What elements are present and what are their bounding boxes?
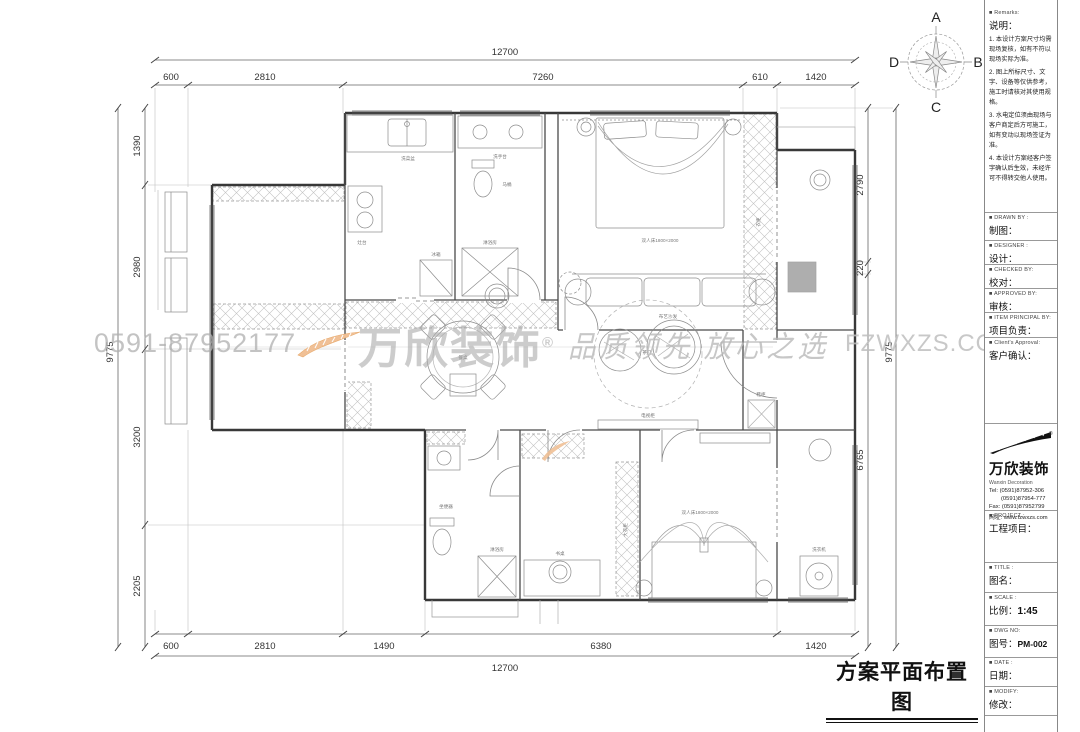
label-toilet2: 坐便器 bbox=[439, 503, 453, 510]
modify-cn: 修改： bbox=[989, 697, 1054, 711]
dim-top-1: 2810 bbox=[254, 72, 275, 83]
section-checked-by: ■ CHECKED BY: 校对： bbox=[985, 264, 1057, 289]
drawing-title-text: 方案平面布置图 bbox=[826, 656, 978, 720]
scale-label: 比例： bbox=[989, 606, 1018, 617]
company-name-en: Wanxin Decoration bbox=[989, 480, 1054, 486]
dim-top-0: 600 bbox=[163, 72, 179, 83]
logo-reg-mark: ® bbox=[1049, 430, 1053, 437]
item-principal-cn: 项目负责： bbox=[989, 323, 1054, 337]
section-modify: ■ MODIFY: 修改： bbox=[985, 686, 1057, 716]
project-cn: 工程项目： bbox=[989, 521, 1054, 535]
wardrobe-hatches bbox=[213, 114, 776, 596]
dim-left-overall: 9775 bbox=[105, 341, 116, 362]
designer-cn: 设计： bbox=[989, 251, 1054, 265]
company-tel2: (0591)87954-777 bbox=[989, 496, 1054, 502]
company-name: 万欣装饰 bbox=[989, 458, 1054, 479]
compass-north: A bbox=[931, 9, 941, 25]
sliding-doors bbox=[345, 190, 777, 540]
section-date: ■ DATE : 日期： bbox=[985, 657, 1057, 682]
section-client-approval: ■ Client's Approval: 客户确认： bbox=[985, 337, 1057, 362]
scale-cn: 比例：1:45 bbox=[989, 603, 1054, 617]
label-shower2: 淋浴房 bbox=[490, 546, 504, 553]
wall-openings bbox=[341, 188, 780, 542]
dim-left-3: 2205 bbox=[132, 575, 143, 596]
dwg-no-value: PM-002 bbox=[1018, 639, 1048, 649]
label-sofa: 布艺沙发 bbox=[659, 313, 678, 320]
checked-by-cn: 校对： bbox=[989, 275, 1054, 289]
label-bed1: 双人床1800×2000 bbox=[682, 509, 719, 516]
section-drawn-by: ■ DRAWN BY : 制图： bbox=[985, 212, 1057, 237]
label-basin1: 洗手台 bbox=[493, 153, 507, 160]
dim-left-0: 1390 bbox=[132, 135, 143, 156]
client-approval-en: ■ Client's Approval: bbox=[989, 340, 1054, 346]
compass-star bbox=[910, 36, 962, 88]
label-fridge: 冰箱 bbox=[431, 251, 441, 258]
note-2: 2. 图上所标尺寸、文字、设备等仅供参考，施工时请核对其使用规格。 bbox=[989, 68, 1054, 109]
remarks-notes: 1. 本设计方案尺寸均需现场复核，如有不符以现场实际为准。 2. 图上所标尺寸、… bbox=[989, 35, 1054, 184]
dwg-no-label: 图号： bbox=[989, 639, 1018, 650]
label-wardrobe1: 大衣柜 bbox=[622, 523, 629, 537]
dim-bot-4: 1420 bbox=[805, 641, 826, 652]
modify-en: ■ MODIFY: bbox=[989, 689, 1054, 695]
label-desk: 书桌 bbox=[555, 550, 565, 557]
dim-bot-3: 6380 bbox=[590, 641, 611, 652]
note-4: 4. 本设计方案经客户签字确认后生效，未经许可不得转交他人使用。 bbox=[989, 154, 1054, 185]
dim-top-2: 7260 bbox=[532, 72, 553, 83]
section-item-principal: ■ ITEM PRINCIPAL BY: 项目负责： bbox=[985, 312, 1057, 337]
dim-bot-0: 600 bbox=[163, 641, 179, 652]
drawn-by-en: ■ DRAWN BY : bbox=[989, 215, 1054, 221]
label-toilet1: 马桶 bbox=[502, 181, 512, 188]
section-designer: ■ DESIGNER : 设计： bbox=[985, 240, 1057, 265]
section-dwg-no: ■ DWG NO: 图号：PM-002 bbox=[985, 625, 1057, 650]
section-company: ® 万欣装饰 Wanxin Decoration Tel: (0591)8795… bbox=[985, 423, 1057, 521]
label-sink: 洗菜盆 bbox=[401, 155, 415, 162]
dimension-lines bbox=[115, 57, 899, 659]
dim-left-2: 3200 bbox=[132, 426, 143, 447]
compass-west: D bbox=[889, 54, 899, 70]
section-approved-by: ■ APPROVED BY: 审核： bbox=[985, 288, 1057, 313]
item-principal-en: ■ ITEM PRINCIPAL BY: bbox=[989, 315, 1054, 321]
title-en: ■ TITLE : bbox=[989, 565, 1054, 571]
dim-bot-1: 2810 bbox=[254, 641, 275, 652]
drawing-title: 方案平面布置图 bbox=[826, 656, 978, 723]
approved-by-en: ■ APPROVED BY: bbox=[989, 291, 1054, 297]
compass-east: B bbox=[973, 54, 982, 70]
dim-left-1: 2980 bbox=[132, 256, 143, 277]
label-wardrobe2: 衣柜 bbox=[755, 217, 762, 227]
client-approval-cn: 客户确认： bbox=[989, 348, 1054, 362]
designer-en: ■ DESIGNER : bbox=[989, 243, 1054, 249]
note-1: 1. 本设计方案尺寸均需现场复核，如有不符以现场实际为准。 bbox=[989, 35, 1054, 66]
section-remarks: ■ Remarks: 说明： 1. 本设计方案尺寸均需现场复核，如有不符以现场实… bbox=[985, 8, 1057, 186]
compass: A B C D bbox=[889, 9, 983, 115]
section-project: ■ PROJECT : 工程项目： bbox=[985, 510, 1057, 535]
remarks-header-cn: 说明： bbox=[989, 18, 1054, 32]
dim-right-overall: 9775 bbox=[884, 341, 895, 362]
date-cn: 日期： bbox=[989, 668, 1054, 682]
dim-top-3: 610 bbox=[752, 72, 768, 83]
approved-by-cn: 审核： bbox=[989, 299, 1054, 313]
scale-en: ■ SCALE : bbox=[989, 595, 1054, 601]
label-tvcab: 电视柜 bbox=[641, 412, 655, 419]
drawn-by-cn: 制图： bbox=[989, 223, 1054, 237]
dim-bottom-overall: 12700 bbox=[492, 663, 518, 674]
label-shower1: 淋浴房 bbox=[483, 239, 497, 246]
label-shoecab: 鞋柜 bbox=[756, 391, 766, 398]
floor-plan-canvas: 12700 600 2810 7260 610 1420 600 2810 14… bbox=[0, 0, 1080, 732]
label-bed2: 双人床1800×2000 bbox=[642, 237, 679, 244]
label-diningtable: 餐桌 bbox=[458, 354, 468, 361]
label-washer: 洗衣机 bbox=[812, 546, 826, 553]
dim-top-overall: 12700 bbox=[492, 47, 518, 58]
checked-by-en: ■ CHECKED BY: bbox=[989, 267, 1054, 273]
label-teatable: 茶几 bbox=[642, 349, 652, 356]
dim-top-4: 1420 bbox=[805, 72, 826, 83]
company-tel1: Tel: (0591)87952-306 bbox=[989, 488, 1054, 494]
dim-bot-2: 1490 bbox=[373, 641, 394, 652]
company-logo-icon: ® bbox=[989, 429, 1053, 455]
project-en: ■ PROJECT : bbox=[989, 513, 1054, 519]
drawing-title-underline bbox=[826, 722, 978, 723]
dwg-no-cn: 图号：PM-002 bbox=[989, 636, 1054, 650]
scale-value: 1:45 bbox=[1018, 606, 1038, 617]
title-cn: 图名： bbox=[989, 573, 1054, 587]
section-scale: ■ SCALE : 比例：1:45 bbox=[985, 592, 1057, 617]
remarks-header-en: ■ Remarks: bbox=[989, 10, 1054, 16]
section-title: ■ TITLE : 图名： bbox=[985, 562, 1057, 587]
compass-south: C bbox=[931, 99, 941, 115]
date-en: ■ DATE : bbox=[989, 660, 1054, 666]
note-3: 3. 水电定位须由现场与客户商定后方可施工，如有变动以现场签证为准。 bbox=[989, 111, 1054, 152]
label-stove: 灶台 bbox=[357, 239, 367, 246]
dwg-no-en: ■ DWG NO: bbox=[989, 628, 1054, 634]
drawing-sheet: 12700 600 2810 7260 610 1420 600 2810 14… bbox=[0, 0, 1080, 732]
title-block: ■ Remarks: 说明： 1. 本设计方案尺寸均需现场复核，如有不符以现场实… bbox=[984, 0, 1058, 732]
